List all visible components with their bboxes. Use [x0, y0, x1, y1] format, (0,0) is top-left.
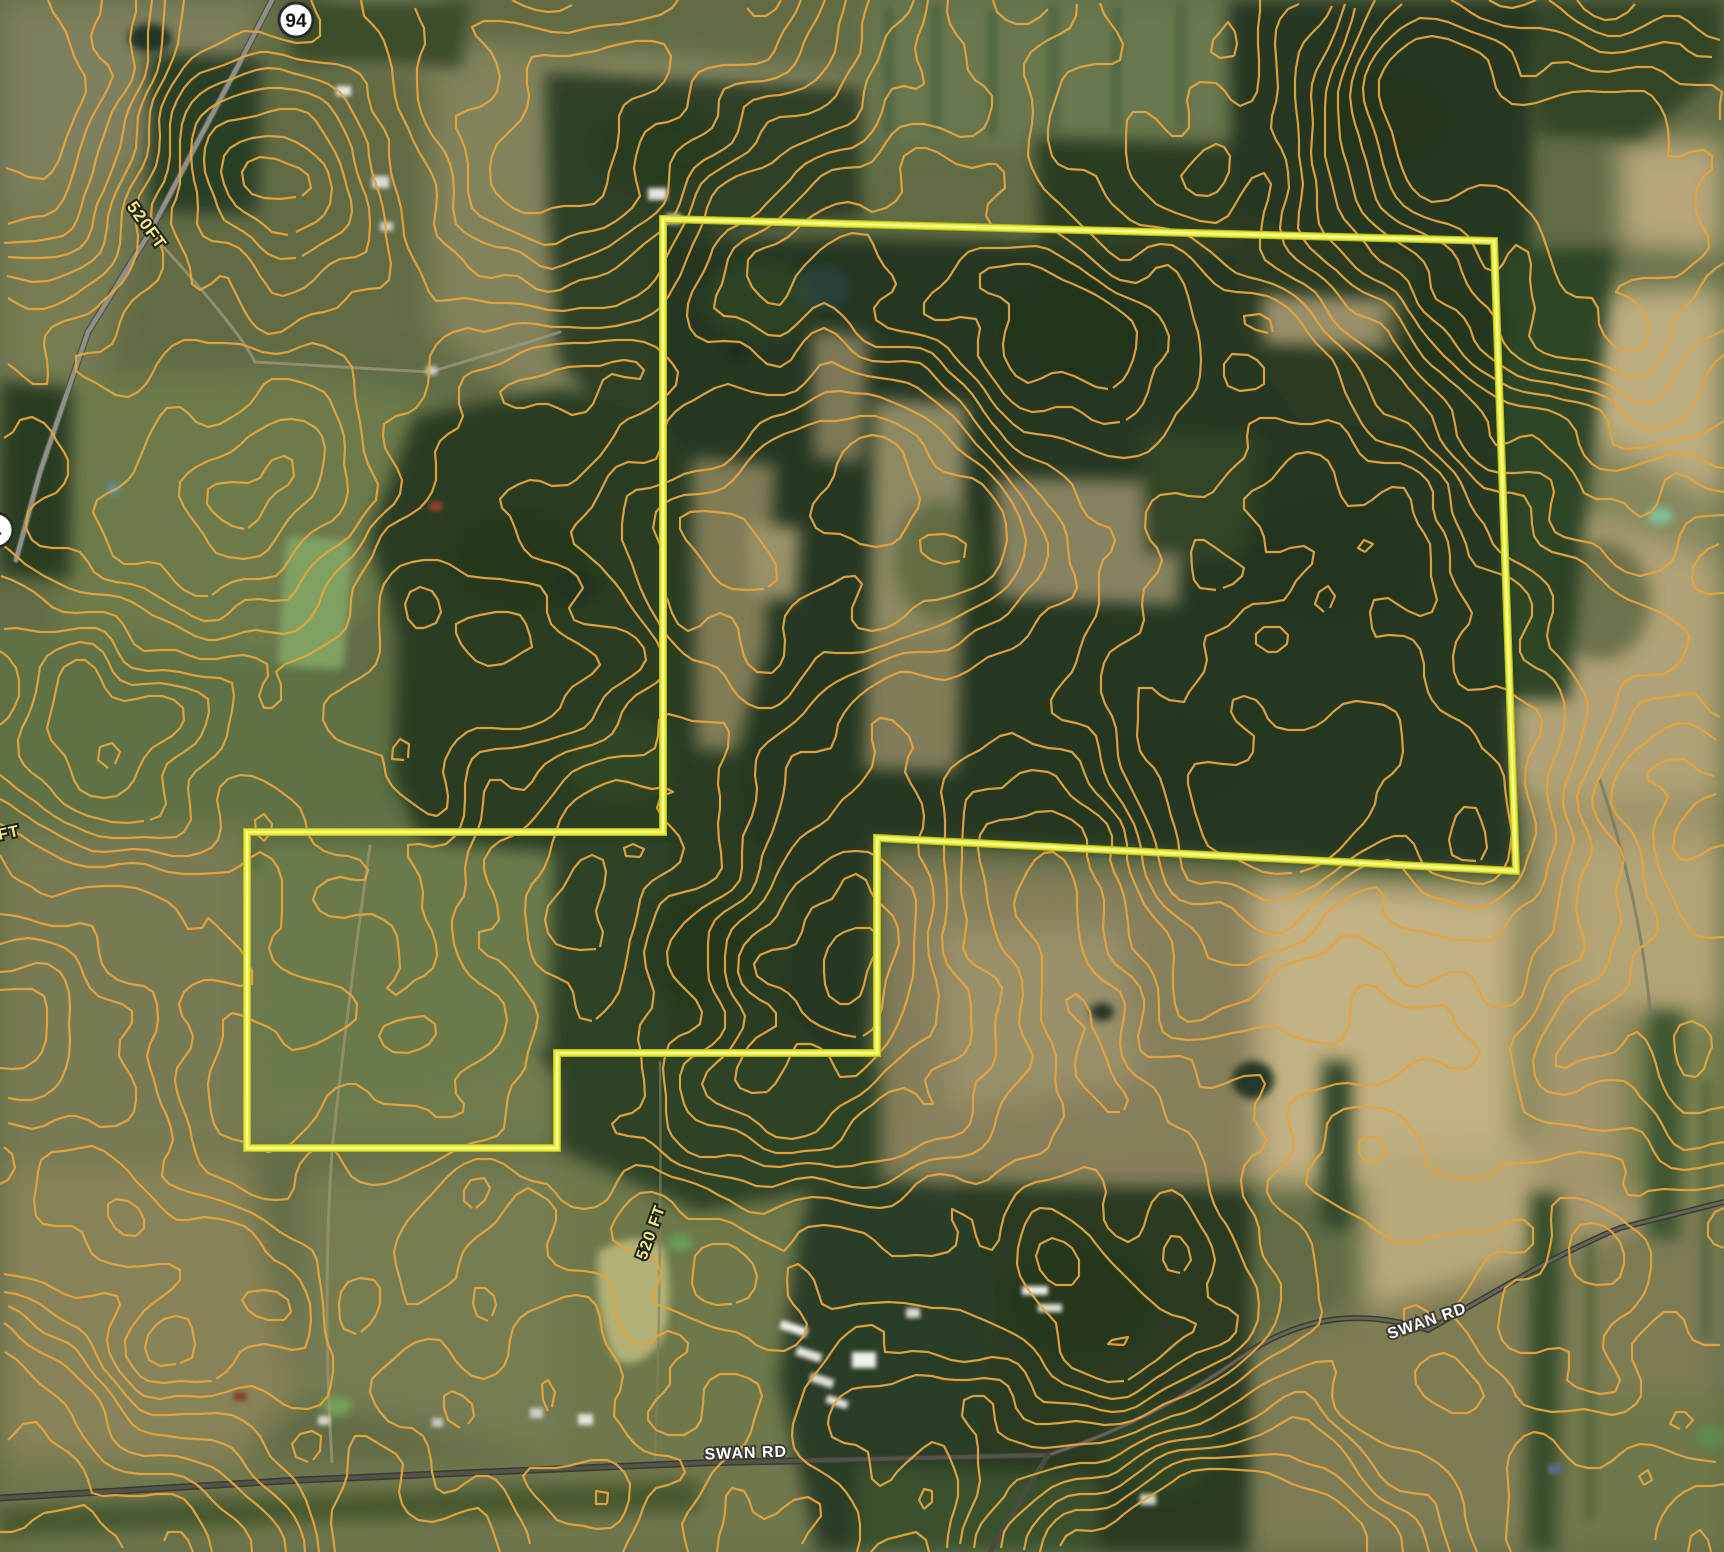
svg-text:94: 94 [285, 11, 307, 32]
svg-text:SWAN RD: SWAN RD [704, 1444, 787, 1464]
